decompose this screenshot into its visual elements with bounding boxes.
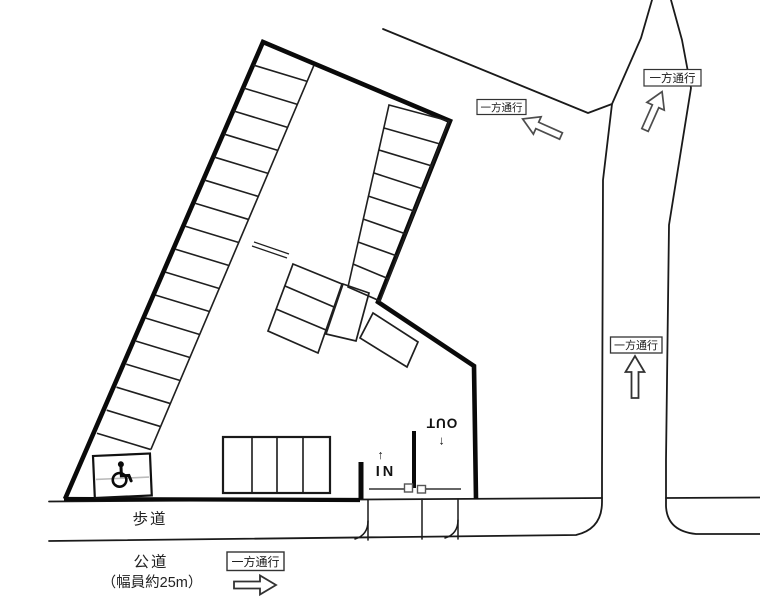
curb-cut-right <box>445 520 458 538</box>
center-block-dividers <box>276 286 334 330</box>
boundary-outline <box>65 42 476 499</box>
gate-pivot-out <box>418 486 426 494</box>
one-way-label-bottom-road: 一方通行 <box>231 554 279 569</box>
out-label: OUT <box>426 416 458 431</box>
one-way-sign-right-road: 一方通行 <box>611 337 663 398</box>
area-labels: 歩道 公道 （幅員約25m） <box>102 510 203 591</box>
in-label: IN <box>376 464 397 480</box>
parking-lot-site-plan: IN ↑ OUT ↓ 一方通行 一方通行 一方通行 一方通行 <box>0 0 760 609</box>
one-way-label-top-road: 一方通行 <box>481 101 523 114</box>
east-road-top-edge <box>666 498 760 499</box>
left-strip-dividers <box>97 59 307 455</box>
one-way-arrow-top-road <box>519 110 565 144</box>
boundary-bottom-edge <box>64 499 360 500</box>
one-way-arrow-right-road <box>626 356 645 398</box>
middle-strip-outline <box>348 105 449 301</box>
out-arrow: ↓ <box>438 434 444 448</box>
divider-wall-mark <box>252 242 289 258</box>
public-road-width-label: （幅員約25m） <box>102 574 203 591</box>
driveway-crossing <box>355 499 458 540</box>
one-way-arrow-bottom-road <box>234 576 276 595</box>
gate-pivot-in <box>405 484 413 492</box>
sidewalk-label: 歩道 <box>132 510 167 528</box>
center-block-outline <box>268 264 342 353</box>
site-plan-canvas: IN ↑ OUT ↓ 一方通行 一方通行 一方通行 一方通行 <box>0 0 760 609</box>
top-road-far-edge <box>383 0 652 113</box>
one-way-label-top-right: 一方通行 <box>650 71 696 85</box>
left-parking-stalls <box>97 44 314 455</box>
bottom-stalls-dividers <box>252 437 303 493</box>
left-strip-right-edge <box>151 66 314 450</box>
public-road-label: 公道 <box>133 553 168 571</box>
bottom-parking-stalls <box>223 437 330 493</box>
in-arrow: ↑ <box>377 448 383 462</box>
one-way-sign-bottom-road: 一方通行 <box>227 552 284 595</box>
one-way-arrow-top-right <box>636 88 670 134</box>
middle-parking-stalls <box>348 105 449 301</box>
curb-cut-left <box>355 521 368 539</box>
one-way-label-right-road: 一方通行 <box>614 338 658 352</box>
entrance-exit-gates: IN ↑ OUT ↓ <box>361 416 461 500</box>
one-way-sign-top-right: 一方通行 <box>636 70 701 134</box>
one-way-signs: 一方通行 一方通行 一方通行 一方通行 <box>227 70 701 595</box>
one-way-sign-top-road: 一方通行 <box>477 100 565 145</box>
accessible-parking-spot <box>93 454 152 498</box>
